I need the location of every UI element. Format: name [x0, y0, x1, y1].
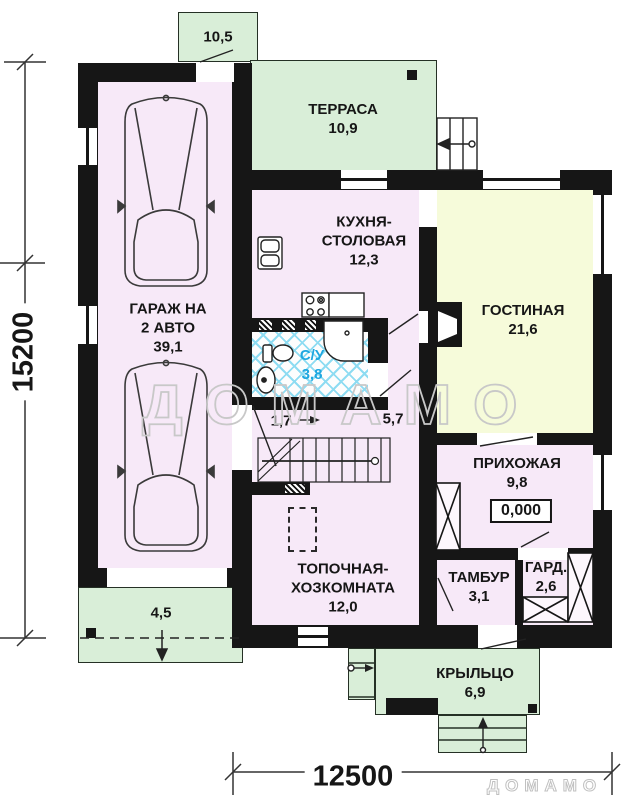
vestibule-wardrobe-divider	[515, 560, 523, 625]
vent-shaft-3	[304, 319, 317, 331]
porch-post-marker	[528, 704, 537, 713]
vent-shaft-1	[258, 319, 273, 331]
porch-label: КРЫЛЬЦО 6,9	[436, 664, 514, 702]
garage-window-2	[78, 303, 97, 347]
porch-steps	[438, 715, 527, 753]
floor-plan: 10,5 ТЕРРАСА 10,9 ГАРАЖ НА 2 АВТО 39,1 К…	[0, 0, 638, 800]
dimension-height-label: 15200	[6, 304, 43, 401]
dimension-width-label: 12500	[305, 759, 402, 796]
living-label: ГОСТИНАЯ 21,6	[482, 301, 565, 339]
elevation-mark: 0,000	[490, 499, 552, 523]
spine-wall	[232, 63, 252, 648]
vent-shaft-2	[281, 319, 296, 331]
terrace-steps	[437, 118, 477, 170]
garage-label: ГАРАЖ НА 2 АВТО 39,1	[129, 299, 206, 356]
garage-window-1	[78, 125, 97, 168]
living-right-window	[593, 192, 612, 277]
kitchen-living-opening	[419, 190, 437, 227]
apron-post-marker	[86, 628, 96, 638]
driveway-apron	[78, 587, 243, 663]
kitchen-label: КУХНЯ- СТОЛОВАЯ 12,3	[322, 212, 406, 269]
garage-gate-gap	[107, 568, 227, 587]
wardrobe-label: ГАРД. 2,6	[525, 558, 567, 596]
watermark-corner: ДОМАМО	[487, 776, 602, 796]
porch-arm	[348, 648, 375, 700]
terrace-label: ТЕРРАСА 10,9	[308, 100, 378, 138]
entrance-door-gap	[478, 625, 517, 648]
vent-shaft-4	[284, 483, 306, 494]
watermark-center: ДОМАМО	[142, 372, 539, 438]
terrace-post-marker	[407, 70, 417, 80]
boiler-window	[295, 627, 331, 646]
entry-label: ПРИХОЖАЯ 9,8	[473, 454, 561, 492]
living-top-window	[480, 170, 563, 189]
apron-area-label: 4,5	[151, 603, 172, 622]
garage-side-door-gap	[196, 63, 234, 82]
entry-right-window	[593, 452, 612, 513]
bottom-wall	[233, 625, 612, 648]
entry-west-wall	[419, 445, 437, 548]
fireplace-body	[428, 302, 462, 347]
elevation-value: 0,000	[501, 502, 541, 519]
vestibule-west-wall	[419, 560, 437, 625]
boiler-unit	[288, 507, 317, 552]
boiler-label: ТОПОЧНАЯ- ХОЗКОМНАТА 12,0	[291, 559, 395, 616]
vestibule-label: ТАМБУР 3,1	[448, 568, 509, 606]
kitchen-window	[338, 170, 390, 189]
porch-stub-wall	[386, 698, 438, 715]
canopy-area-label: 10,5	[203, 27, 232, 46]
